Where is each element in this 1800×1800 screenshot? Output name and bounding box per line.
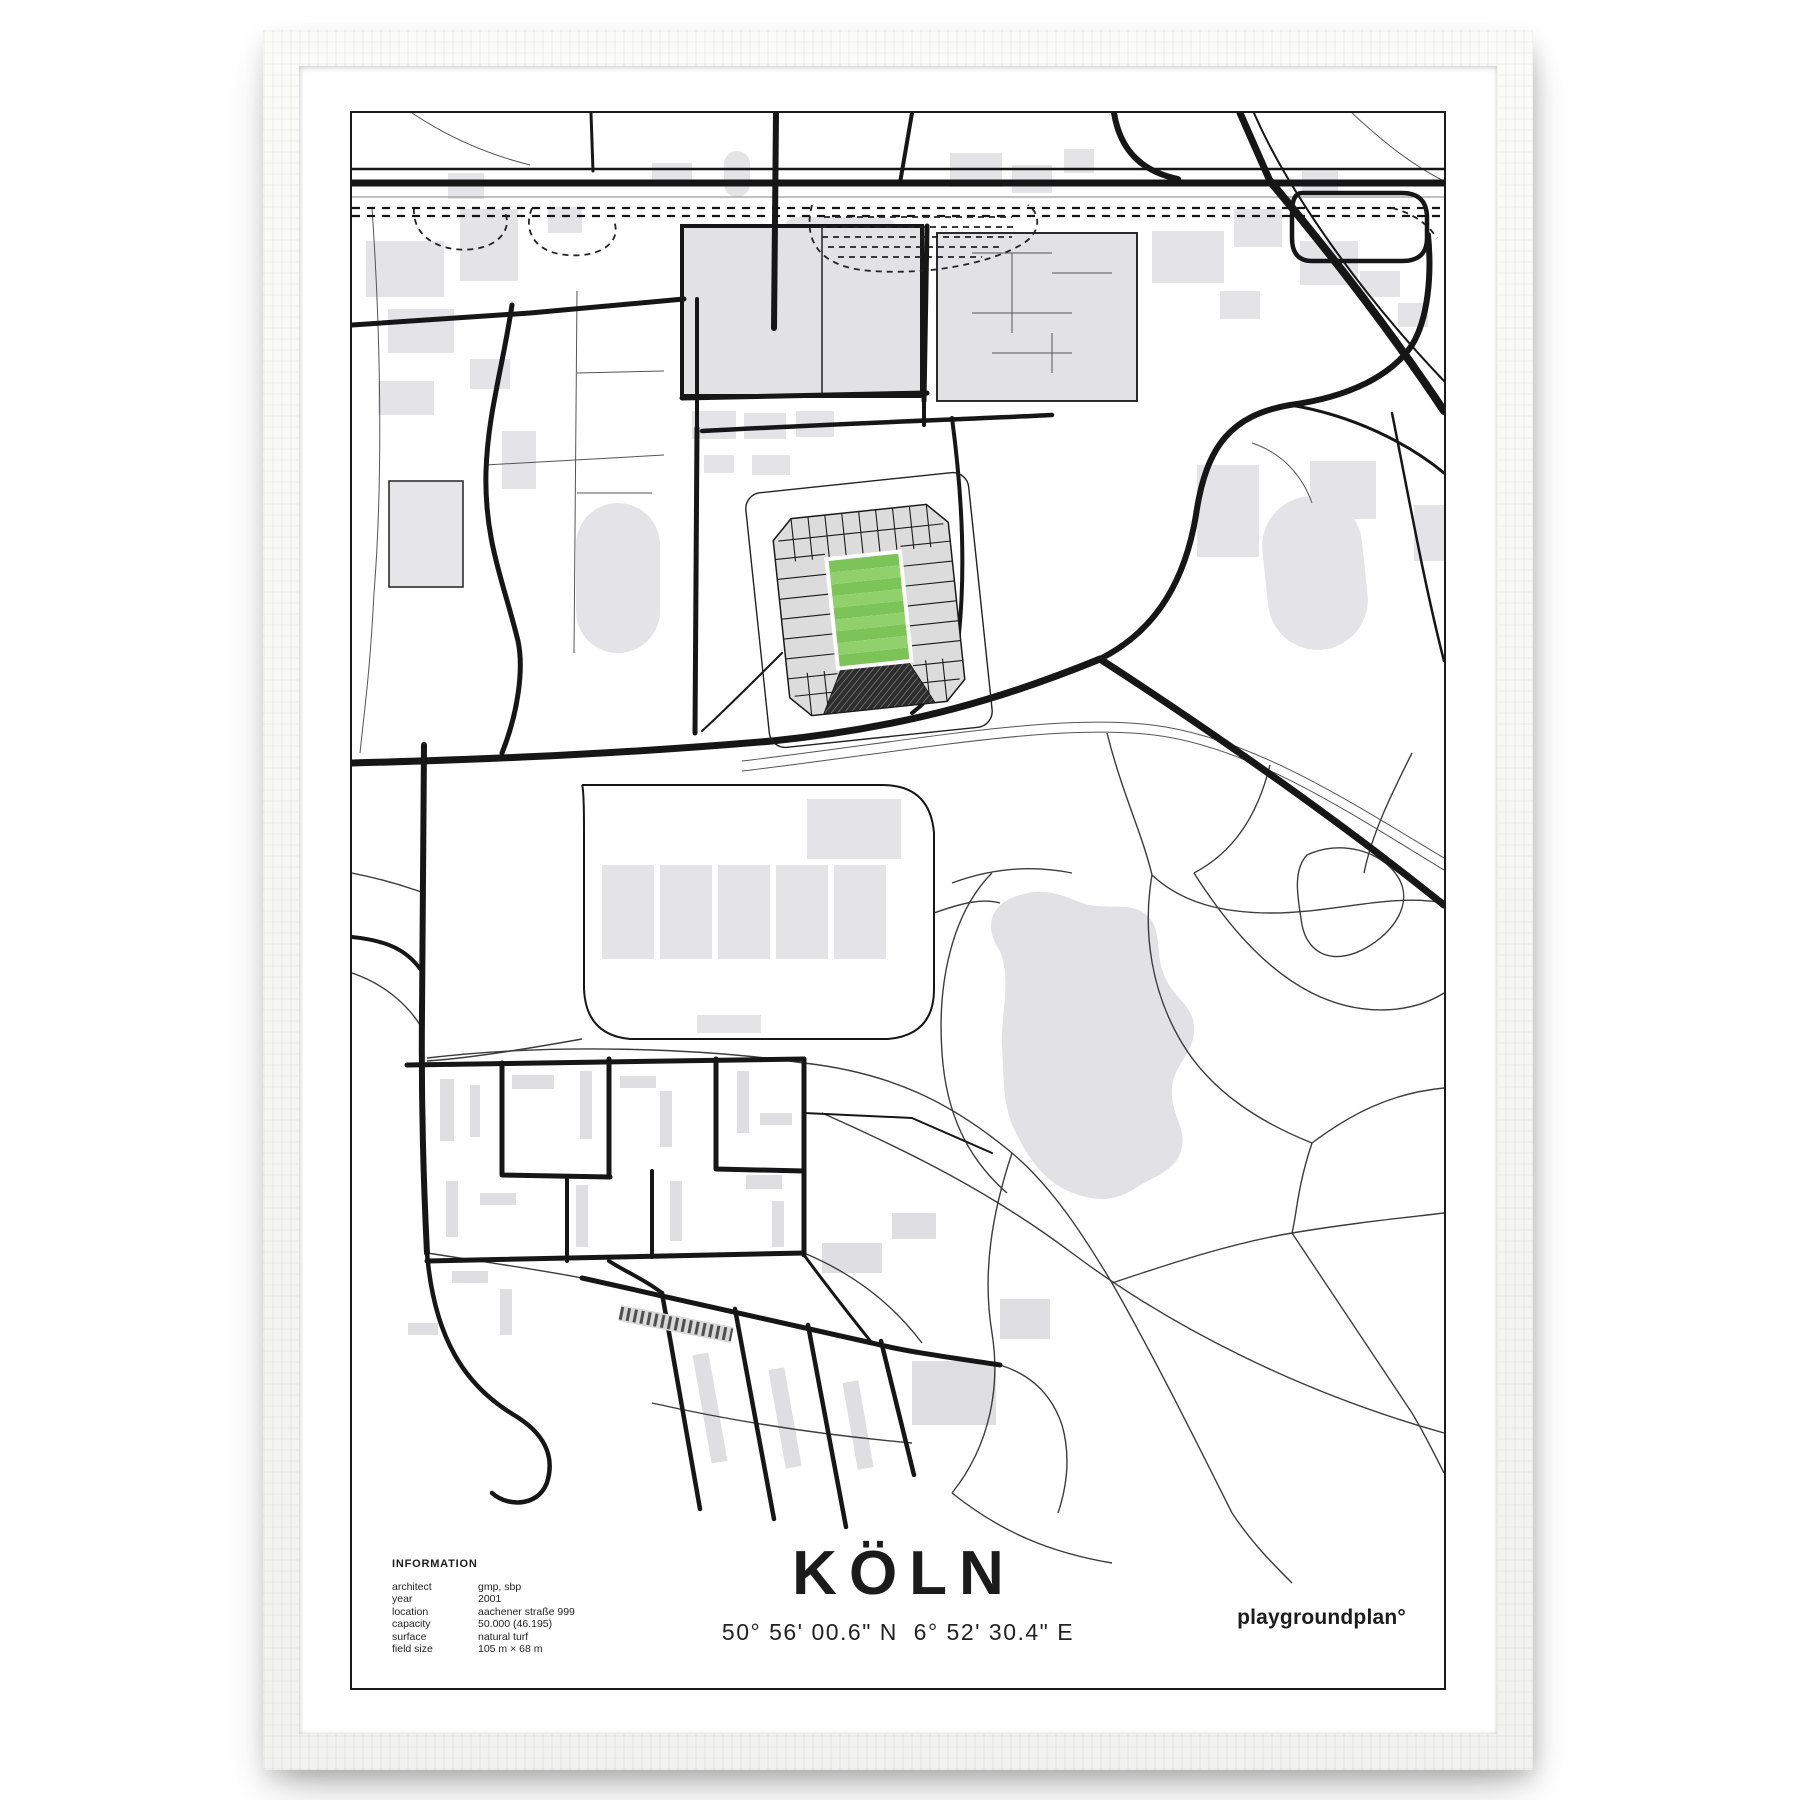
park-paths xyxy=(352,733,1444,1583)
stadium-map xyxy=(352,113,1444,1688)
lake xyxy=(991,891,1194,1198)
title-block: KÖLN 50° 56' 00.6" N 6° 52' 30.4" E xyxy=(352,1543,1444,1646)
poster-title: KÖLN xyxy=(352,1543,1446,1605)
poster: INFORMATION architectgmp, sbpyear2001loc… xyxy=(350,111,1446,1690)
frame-matte: INFORMATION architectgmp, sbpyear2001loc… xyxy=(299,66,1497,1734)
picture-frame: INFORMATION architectgmp, sbpyear2001loc… xyxy=(263,30,1533,1770)
building-footprints xyxy=(366,149,1444,1470)
page: { "poster": { "title": "KÖLN", "coordina… xyxy=(0,0,1800,1800)
stadium-pitch xyxy=(829,553,910,666)
brand-logo: playgroundplan° xyxy=(1237,1606,1406,1630)
